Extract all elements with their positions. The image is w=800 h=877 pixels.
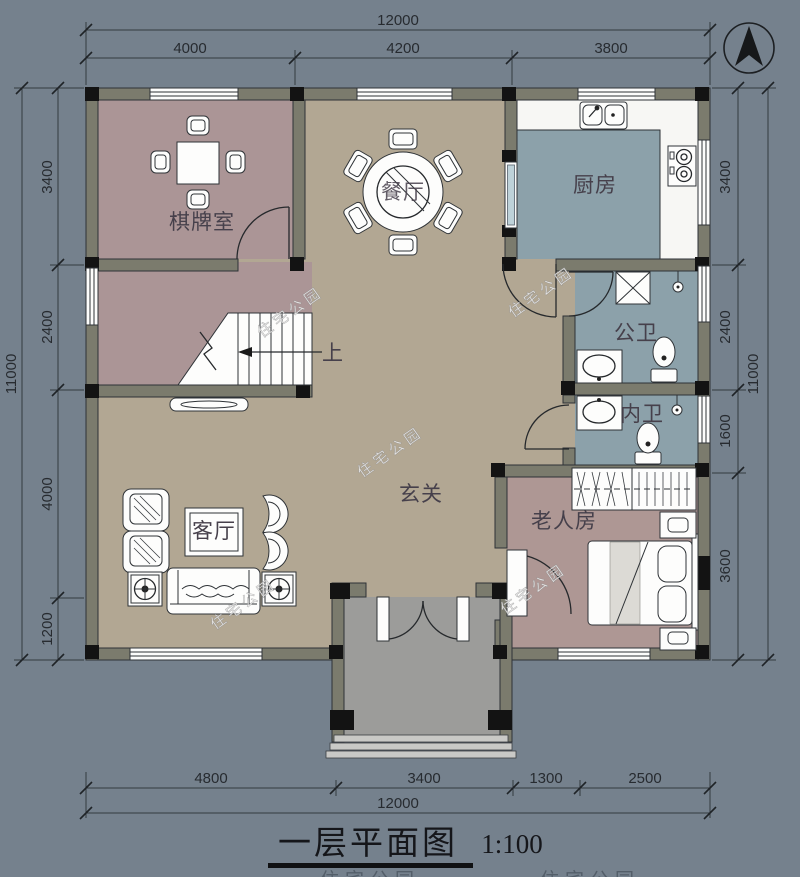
label-stairs-up: 上 (322, 341, 344, 365)
dim-left-total: 11000 (3, 354, 20, 395)
dim-top-total: 12000 (377, 12, 419, 29)
shower (616, 272, 650, 304)
label-public-bath: 公卫 (614, 321, 658, 345)
window-kitchen-top (578, 88, 655, 100)
label-inner-bath: 内卫 (620, 402, 664, 426)
dim-bottom-seg: 1300 (529, 770, 562, 787)
wall-right-black-segment (697, 556, 710, 590)
dim-top-seg: 4000 (173, 40, 206, 57)
wall-stairhall-bottom (86, 385, 312, 397)
kitchen-sink (580, 102, 627, 129)
dim-right-total: 11000 (745, 354, 762, 395)
inner-bath-toilet (635, 423, 661, 464)
dim-bottom-seg: 3400 (407, 770, 440, 787)
elder-room-furniture (572, 468, 698, 650)
wall-bath-left-lower (563, 448, 575, 465)
armchair (123, 489, 169, 531)
mahjong-table (177, 142, 219, 184)
north-arrow-icon (724, 23, 774, 73)
drawing-title-block: 一层平面图 1:100 (268, 826, 543, 868)
dim-left-seg: 4000 (39, 477, 56, 510)
dim-right-seg: 3600 (717, 549, 734, 582)
watermark-text-cropped: 住宅公园 (540, 869, 640, 877)
dim-bottom-seg: 2500 (628, 770, 661, 787)
wardrobe (572, 468, 696, 510)
double-bed (588, 534, 698, 630)
dim-right-seg: 2400 (717, 310, 734, 343)
wall-elder-left-upper (495, 477, 507, 548)
dim-right-seg: 1600 (717, 414, 734, 447)
pillow (658, 586, 686, 622)
plant-side-table (128, 572, 162, 606)
scale-label: 1:100 (481, 829, 543, 859)
window-public-bath-right (698, 266, 710, 322)
dim-left-seg: 2400 (39, 310, 56, 343)
dim-bottom-seg: 4800 (194, 770, 227, 787)
dim-left-seg: 3400 (39, 160, 56, 193)
dim-right-seg: 3400 (717, 160, 734, 193)
label-living: 客厅 (192, 519, 236, 543)
wall-bath-divider (563, 383, 698, 395)
window-elder-bottom (558, 648, 650, 660)
title-underline (268, 863, 473, 868)
dim-top-seg: 3800 (594, 40, 627, 57)
window-living-bottom (130, 648, 262, 660)
label-chess-room: 棋牌室 (169, 210, 235, 234)
bed-blanket (610, 542, 640, 624)
armchair (123, 531, 169, 573)
label-dining: 餐厅 (381, 180, 425, 204)
kitchen-stove (668, 146, 696, 186)
pillow (658, 546, 686, 582)
glass-door-dining-kitchen (505, 162, 517, 228)
dim-bottom-total: 12000 (377, 795, 419, 812)
label-foyer: 玄关 (399, 482, 443, 506)
window-stairhall-left (86, 268, 98, 325)
wall-chess-dining (293, 100, 305, 259)
porch-steps (326, 735, 516, 758)
window-chess-top (150, 88, 238, 100)
wall-bath-left-upper (563, 316, 575, 383)
floor-plan-canvas: 12000 4000 4200 3800 4800 3400 1300 2500… (0, 0, 800, 877)
window-kitchen-right (698, 140, 710, 225)
nightstand (660, 512, 696, 538)
floor-plan-drawing: 12000 4000 4200 3800 4800 3400 1300 2500… (0, 0, 800, 877)
tv-cabinet (170, 398, 248, 411)
wall-bath-left-mid (563, 395, 575, 403)
label-elder-room: 老人房 (531, 509, 597, 533)
wall-under-chess (86, 259, 238, 271)
wall-under-kitchen (556, 259, 698, 271)
nightstand (660, 628, 696, 650)
inner-bath-sink (577, 396, 622, 430)
watermark-text-cropped: 住宅公园 (320, 869, 420, 877)
public-bath-sink (577, 350, 622, 383)
dim-left-seg: 1200 (39, 612, 56, 645)
label-kitchen: 厨房 (573, 173, 617, 197)
floor-porch (344, 597, 500, 742)
page-title: 一层平面图 (278, 826, 458, 862)
window-dining-top (357, 88, 452, 100)
dim-top-seg: 4200 (386, 40, 419, 57)
bed-headboard (692, 534, 698, 630)
wall-left (86, 88, 98, 660)
window-inner-bath-right (698, 396, 710, 443)
